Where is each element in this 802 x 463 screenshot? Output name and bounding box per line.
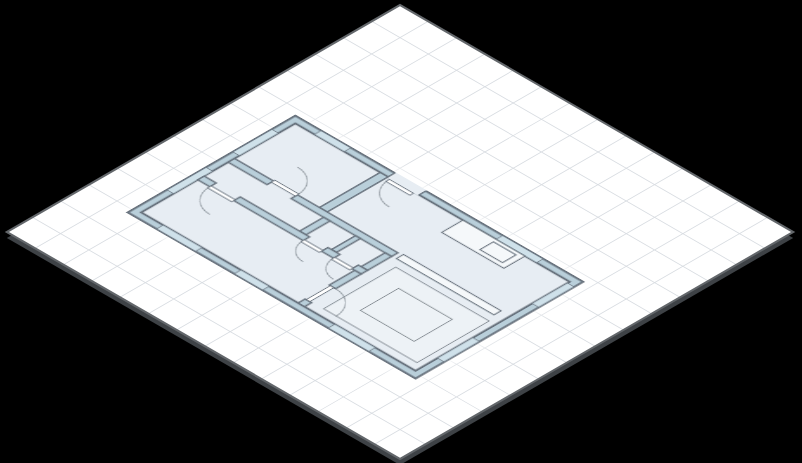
- scene-canvas: [0, 0, 802, 463]
- isometric-scene: [0, 0, 802, 463]
